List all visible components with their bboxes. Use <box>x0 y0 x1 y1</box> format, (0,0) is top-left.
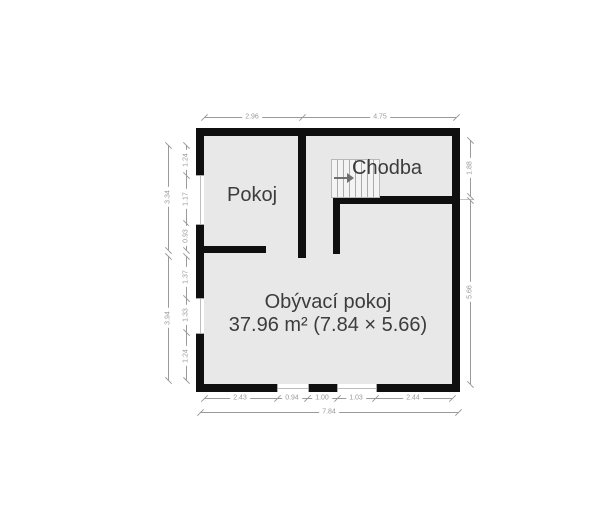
dim-label-bottom-total: 7.84 <box>319 408 339 417</box>
dim-label-top-right: 4.75 <box>370 113 390 122</box>
dim-label-bottom-3: 1.00 <box>312 394 332 403</box>
dim-label-left-top-total: 3.34 <box>164 187 173 207</box>
dim-label-left-bottom-1: 1.37 <box>182 267 191 287</box>
wall-outer-left <box>196 128 204 392</box>
room-label-pokoj: Pokoj <box>210 184 294 206</box>
window-left-pokoj <box>196 175 204 225</box>
dim-label-bottom-2: 0.94 <box>282 394 302 403</box>
floorplan-canvas: Pokoj Chodba Obývací pokoj 37.96 m² (7.8… <box>0 0 600 530</box>
wall-outer-top <box>196 128 460 136</box>
dim-label-right-bottom: 5.66 <box>466 282 475 302</box>
stairs-direction-line <box>334 177 347 179</box>
room-label-living: Obývací pokoj <box>204 291 452 314</box>
dim-label-bottom-4: 1.03 <box>346 394 366 403</box>
dim-label-left-bottom-2: 1.33 <box>182 305 191 325</box>
dim-tick <box>453 114 460 121</box>
wall-chodba-stub <box>333 204 340 254</box>
dim-tick <box>449 395 456 402</box>
dim-label-left-bottom-total: 3.94 <box>164 308 173 328</box>
wall-outer-bottom <box>196 384 460 392</box>
dim-label-left-top-2: 1.17 <box>182 189 191 209</box>
window-bottom-1 <box>277 384 309 392</box>
dim-label-left-top-3: 0.93 <box>182 226 191 246</box>
dim-label-bottom-1: 2.43 <box>230 394 250 403</box>
window-left-living <box>196 298 204 334</box>
dim-label-bottom-5: 2.44 <box>403 394 423 403</box>
dim-label-left-bottom-3: 1.24 <box>182 346 191 366</box>
window-bottom-2 <box>337 384 377 392</box>
wall-outer-right <box>452 128 460 392</box>
room-label-chodba: Chodba <box>352 157 422 179</box>
dim-label-right-top: 1.88 <box>466 158 475 178</box>
room-area-living: 37.96 m² (7.84 × 5.66) <box>204 314 452 337</box>
wall-divider-pokoj-chodba <box>298 136 306 258</box>
wall-pokoj-bottom <box>204 246 266 253</box>
dim-label-left-top-1: 1.24 <box>182 150 191 170</box>
dim-tick <box>455 409 462 416</box>
dim-label-top-left: 2.96 <box>242 113 262 122</box>
